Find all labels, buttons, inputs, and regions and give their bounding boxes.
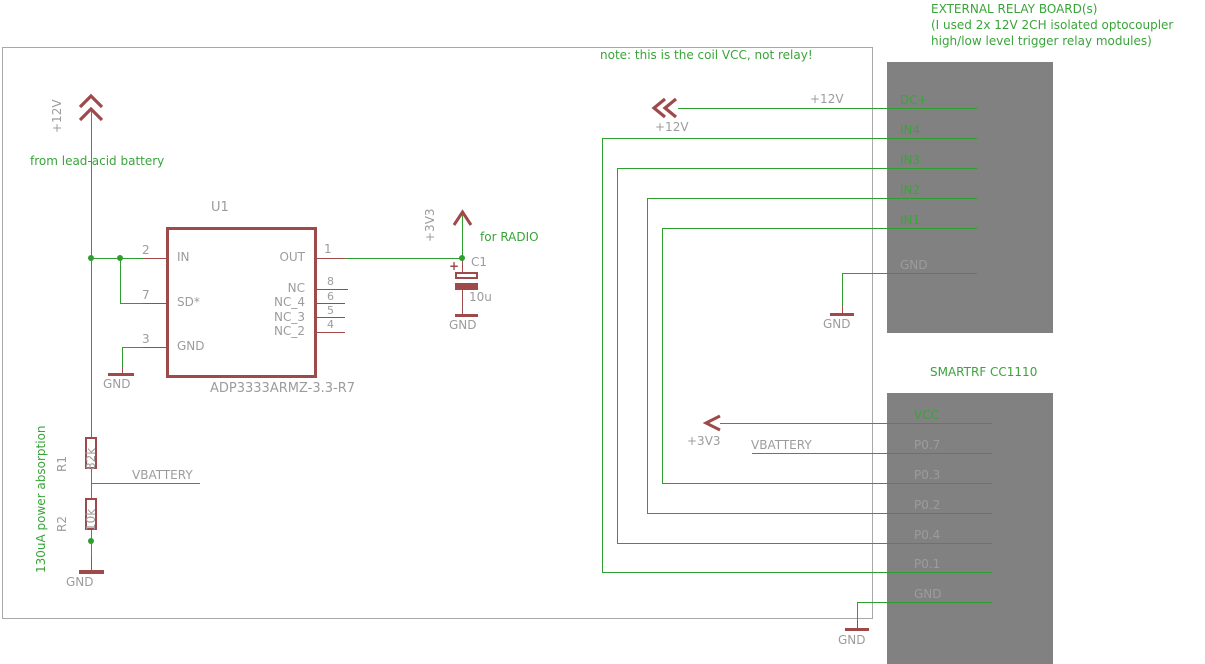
cc1110-pin-p07: P0.7: [914, 439, 940, 452]
cc1110-module: [887, 393, 1053, 664]
u1-pin6-number: 6: [327, 291, 334, 303]
pin-stub-segment: [91, 557, 92, 571]
wire-segment: [122, 347, 123, 368]
relay-pin-in4: IN4: [900, 124, 920, 137]
wire-segment: [720, 423, 992, 424]
relay-board-title-line2: (I used 2x 12V 2CH isolated optocoupler: [931, 19, 1173, 32]
r2-reference: R2: [56, 516, 69, 532]
gnd-symbol-bar: [79, 570, 104, 574]
schematic-canvas: U1 ADP3333ARMZ-3.3-R7 2 7 3 IN SD* GND O…: [0, 0, 1205, 664]
v12-label-arrow: +12V: [655, 121, 689, 134]
supply-3v3-up-arrow-icon: [452, 210, 473, 227]
cc1110-pin-vcc: VCC: [914, 409, 939, 422]
gnd-symbol-bar: [455, 314, 478, 317]
relay-pin-dcplus: DC+: [900, 94, 928, 107]
wire-segment: [857, 602, 858, 622]
gnd-label-cc: GND: [838, 634, 866, 647]
wire-segment: [678, 108, 977, 109]
vbattery-label-right: VBATTERY: [751, 439, 812, 452]
vbattery-label-left: VBATTERY: [132, 469, 193, 482]
pin-stub-segment: [143, 258, 167, 259]
wire-junction-dot: [88, 538, 94, 544]
c1-polarity-sign: +: [449, 260, 459, 273]
c1-reference: C1: [471, 256, 487, 269]
wire-segment: [602, 572, 992, 573]
u1-pin7-number: 7: [142, 289, 150, 302]
r1-value: 82k: [85, 448, 98, 470]
supply-12v-left-arrow-icon: [652, 97, 678, 119]
wire-segment: [857, 602, 992, 603]
v3v3-label-vcc-arrow: +3V3: [687, 435, 721, 448]
battery-source-note: from lead-acid battery: [30, 155, 164, 168]
wire-segment: [842, 273, 977, 274]
gnd-label-u1: GND: [103, 378, 131, 391]
u1-pin3-number: 3: [142, 333, 150, 346]
relay-board-title-line1: EXTERNAL RELAY BOARD(s): [931, 3, 1098, 16]
supply-12v-up-arrow-icon: [77, 95, 105, 121]
gnd-label-c1: GND: [449, 319, 477, 332]
r1-reference: R1: [56, 456, 69, 472]
wire-segment: [120, 258, 121, 304]
gnd-symbol-bar: [845, 628, 869, 631]
gnd-label-relay: GND: [823, 318, 851, 331]
wire-segment: [752, 453, 992, 454]
gnd-symbol-bar: [830, 313, 854, 316]
wire-segment: [91, 483, 200, 484]
wire-junction-dot: [117, 255, 123, 261]
u1-pin2-number: 2: [142, 244, 150, 257]
wire-segment: [602, 138, 603, 573]
c1-top-plate: [455, 272, 478, 279]
c1-value: 10u: [469, 291, 492, 304]
u1-pin1-number: 1: [324, 243, 332, 256]
wire-segment: [647, 198, 977, 199]
u1-pin-name-sd: SD*: [177, 296, 200, 309]
cc1110-pin-gnd: GND: [914, 588, 942, 601]
wire-segment: [122, 347, 144, 348]
cc1110-pin-p03: P0.3: [914, 469, 940, 482]
wire-segment: [647, 198, 648, 514]
relay-pin-in1: IN1: [900, 214, 920, 227]
u1-pin-name-out: OUT: [230, 251, 305, 264]
u1-reference: U1: [211, 201, 229, 215]
u1-pin5-number: 5: [327, 305, 334, 317]
gnd-symbol-bar: [108, 373, 134, 376]
u1-part-number: ADP3333ARMZ-3.3-R7: [210, 382, 355, 396]
wire-segment: [602, 138, 977, 139]
supply-3v3-left-arrow-icon: [703, 414, 723, 432]
wire-segment: [662, 228, 977, 229]
u1-pin-name-gnd: GND: [177, 340, 205, 353]
u1-pin-name-nc3: NC_3: [230, 311, 305, 324]
cc1110-title: SMARTRF CC1110: [930, 366, 1037, 379]
relay-pin-in3: IN3: [900, 154, 920, 167]
wire-segment: [842, 273, 843, 307]
u1-pin4-number: 4: [327, 319, 334, 331]
coil-vcc-note: note: this is the coil VCC, not relay!: [600, 49, 813, 62]
pin-stub-segment: [462, 290, 463, 314]
u1-pin-name-in: IN: [177, 251, 190, 264]
schematic-sheet-frame: [2, 47, 873, 619]
wire-segment: [91, 465, 92, 499]
relay-board-title-line3: high/low level trigger relay modules): [931, 35, 1152, 48]
gnd-label-r2: GND: [66, 576, 94, 589]
power-absorption-note: 130uA power absorption: [35, 425, 48, 573]
r2-value: 10k: [85, 509, 98, 531]
wire-segment: [662, 228, 663, 484]
u1-pin-name-nc4: NC_4: [230, 296, 305, 309]
wire-segment: [617, 543, 992, 544]
cc1110-pin-p01: P0.1: [914, 558, 940, 571]
relay-pin-in2: IN2: [900, 184, 920, 197]
wire-segment: [662, 483, 992, 484]
relay-pin-gnd: GND: [900, 259, 928, 272]
wire-junction-dot: [88, 255, 94, 261]
wire-segment: [617, 168, 618, 544]
c1-bottom-plate: [455, 283, 478, 290]
pin-stub-segment: [143, 347, 167, 348]
radio-note: for RADIO: [480, 231, 539, 244]
wire-segment: [617, 168, 977, 169]
cc1110-pin-p04: P0.4: [914, 529, 940, 542]
u1-pin-name-nc2: NC_2: [230, 325, 305, 338]
pin-stub-segment: [143, 303, 167, 304]
cc1110-pin-p02: P0.2: [914, 499, 940, 512]
wire-segment: [120, 303, 144, 304]
wire-segment: [647, 513, 992, 514]
u1-pin8-number: 8: [327, 276, 334, 288]
v12-supply-label-left: +12V: [51, 99, 64, 133]
u1-pin-name-nc: NC: [230, 282, 305, 295]
v12-label-dc-wire: +12V: [810, 93, 844, 106]
v3v3-supply-label-cap: +3V3: [424, 208, 437, 242]
wire-junction-dot: [459, 255, 465, 261]
wire-segment: [345, 258, 463, 259]
